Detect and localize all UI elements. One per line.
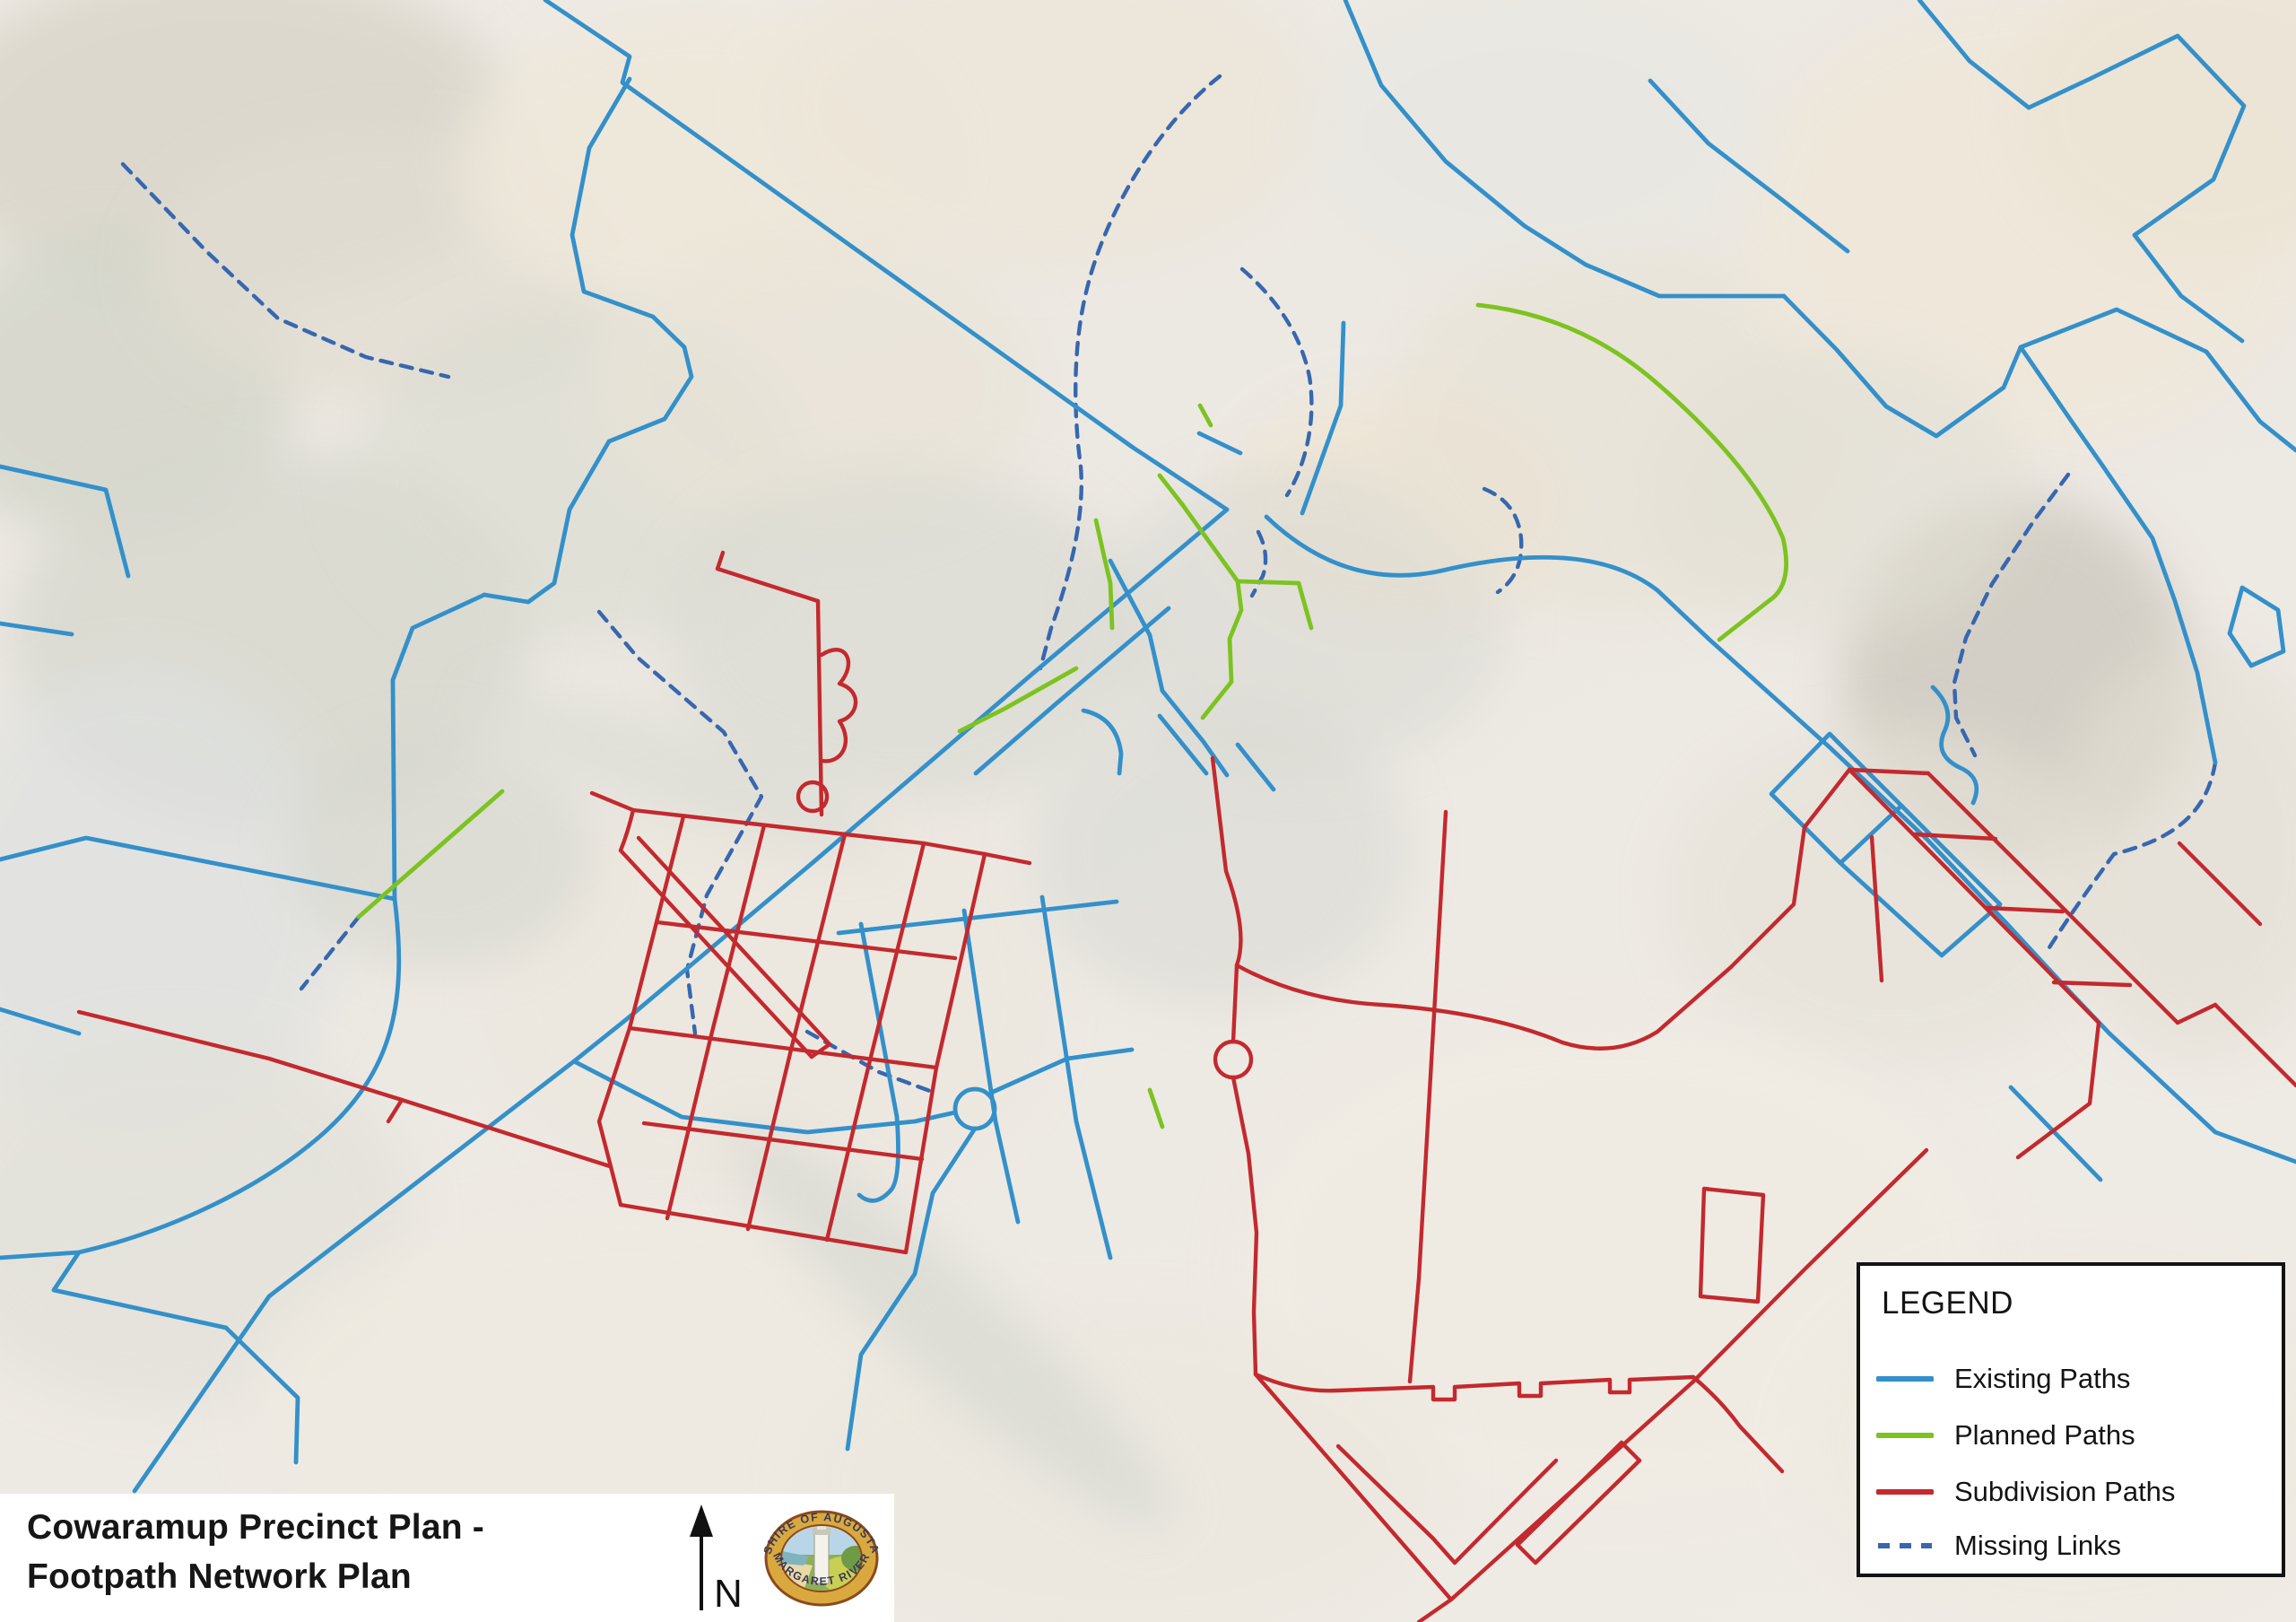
- subdivision-path-line: [1518, 1545, 1535, 1563]
- subdivision-path-line: [388, 1100, 402, 1121]
- legend-heading: LEGEND: [1882, 1286, 2013, 1321]
- existing-path-line: [2011, 1087, 2100, 1180]
- existing-path-line: [2230, 588, 2283, 666]
- subdivision-path-line: [1215, 1042, 1251, 1077]
- legend-row-missing: Missing Links: [1860, 1530, 2282, 1565]
- subdivision-path-line: [2054, 982, 2130, 985]
- legend-label-planned: Planned Paths: [1954, 1419, 2135, 1452]
- north-label: N: [714, 1572, 743, 1616]
- existing-paths-swatch: [1876, 1375, 1934, 1382]
- map-page: Cowaramup Precinct Plan - Footpath Netwo…: [0, 0, 2296, 1622]
- legend-label-subdivision: Subdivision Paths: [1954, 1476, 2175, 1508]
- aerial-texture-blob: [1300, 0, 1767, 278]
- legend-label-existing: Existing Paths: [1954, 1363, 2130, 1395]
- subdivision-path-line: [985, 854, 1030, 863]
- subdivision-path-line: [1419, 1600, 1451, 1622]
- existing-path-line: [1199, 433, 1240, 453]
- map-title-line1: Cowaramup Precinct Plan -: [27, 1503, 484, 1552]
- map-title: Cowaramup Precinct Plan - Footpath Netwo…: [27, 1503, 484, 1602]
- legend-box: LEGEND Existing Paths Planned Paths Subd…: [1857, 1262, 2285, 1577]
- planned-path-line: [1200, 405, 1211, 425]
- aerial-texture-blob: [287, 736, 592, 969]
- existing-path-line: [2206, 352, 2296, 450]
- planned-paths-swatch: [1876, 1432, 1934, 1439]
- shire-logo: SHIRE OF AUGUSTA MARGARET RIVER: [750, 1499, 893, 1618]
- map-title-line2: Footpath Network Plan: [27, 1552, 484, 1601]
- north-arrow-head: [690, 1504, 713, 1537]
- missing-links-swatch: [1876, 1542, 1934, 1549]
- aerial-texture-blob: [1650, 350, 2027, 637]
- legend-row-subdivision: Subdivision Paths: [1860, 1476, 2282, 1512]
- planned-path-line: [1150, 1090, 1162, 1127]
- legend-row-existing: Existing Paths: [1860, 1363, 2282, 1399]
- legend-row-planned: Planned Paths: [1860, 1419, 2282, 1455]
- legend-label-missing: Missing Links: [1954, 1530, 2121, 1562]
- title-block: Cowaramup Precinct Plan - Footpath Netwo…: [0, 1494, 894, 1622]
- subdivision-paths-swatch: [1876, 1488, 1934, 1496]
